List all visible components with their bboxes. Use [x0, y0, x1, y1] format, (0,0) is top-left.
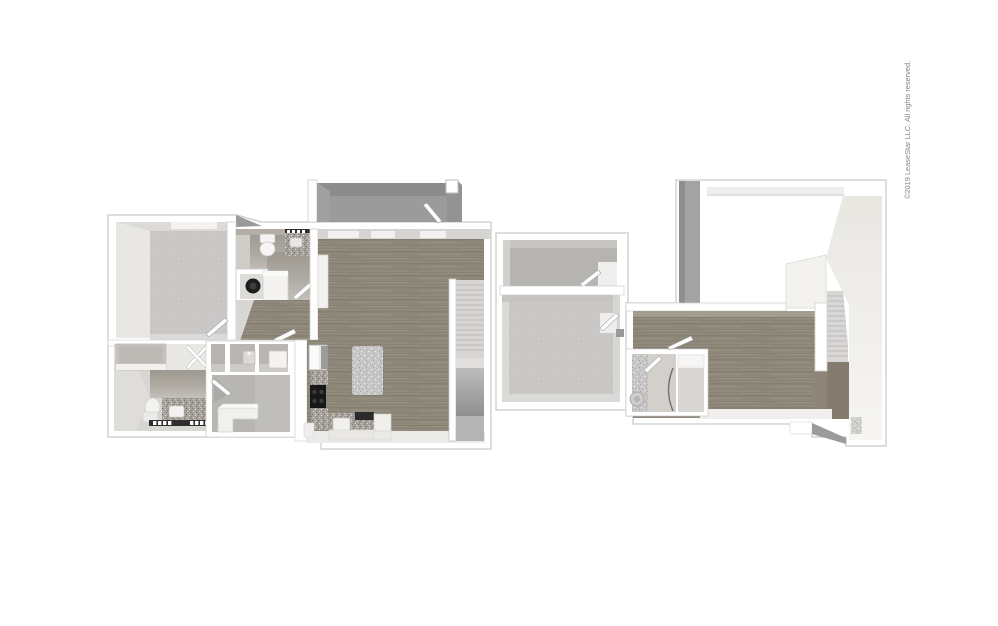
svg-text:©2019 LeaseStar LLC. All right: ©2019 LeaseStar LLC. All rights reserved… [903, 61, 912, 199]
